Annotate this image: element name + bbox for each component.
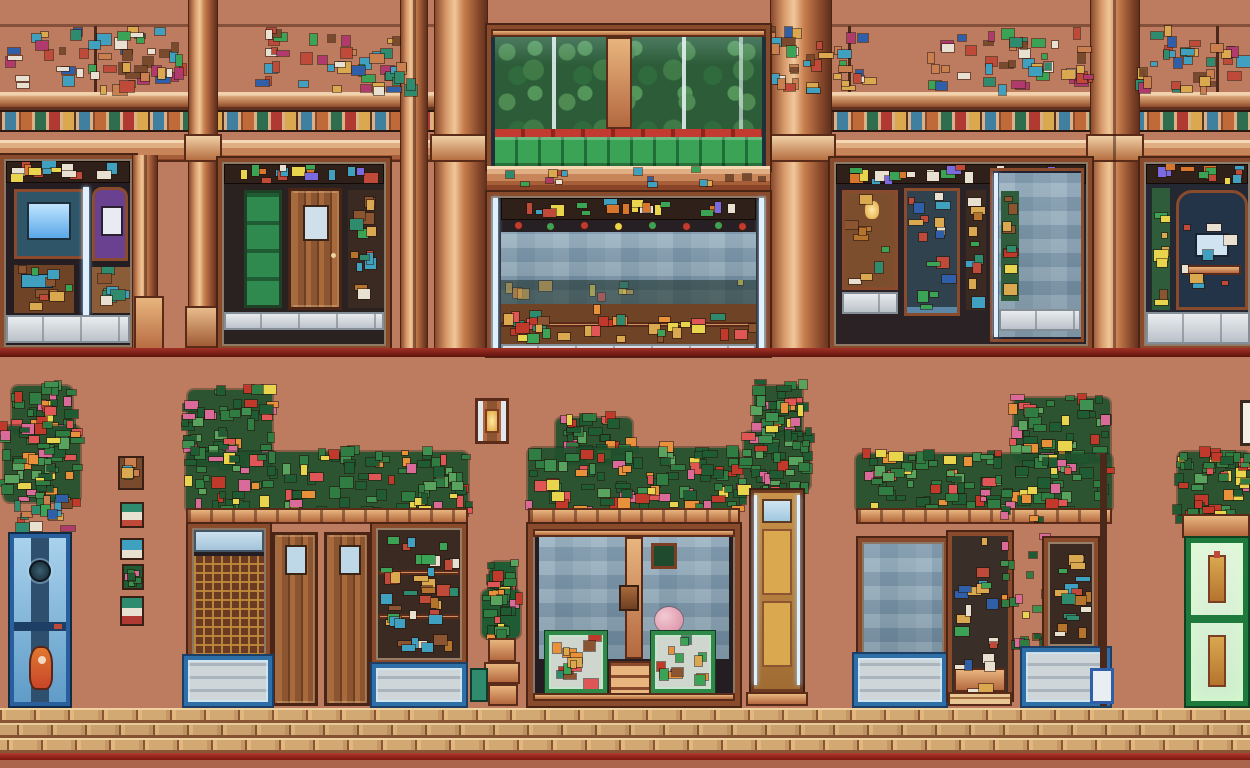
balcony-shelf [487,166,770,192]
vine-cabinet-column[interactable] [744,386,810,706]
pixel-block [715,484,722,490]
pixel-block [66,472,73,479]
pixel-block [692,167,700,172]
pane-mullion [552,37,556,129]
pixel-block [30,303,42,310]
pixel-block [389,476,394,484]
window-glass [864,544,942,656]
pixel-block [1157,259,1167,267]
flower-mass [528,448,740,512]
pixel-block [423,447,432,455]
pixel-block [942,44,954,52]
pixel-block [432,458,440,467]
wall-sign[interactable] [120,502,144,528]
pixel-block [183,414,195,419]
pixel-block [859,228,866,235]
hanging-sign[interactable] [619,585,639,611]
pixel-block [661,458,670,465]
pixel-block [803,441,809,446]
pixel-block [1168,37,1176,47]
lamp-glow [485,409,499,433]
pixel-block [333,86,341,92]
pixel-block [128,574,135,580]
pixel-block [429,615,442,624]
neon-strip [759,198,764,350]
shelf-clutter [1140,30,1250,92]
pixel-block [909,456,915,460]
upper-floor-strip [0,0,1250,356]
pixel-block [16,523,29,533]
pixel-block [727,446,738,457]
pixel-block [504,579,516,586]
case-divider [14,622,66,631]
pixel-block [28,410,33,416]
goods-shelves [1050,544,1092,644]
pixel-block [1244,454,1250,463]
transom-glass [194,530,264,552]
pixel-block [501,608,511,615]
pixel-block [738,485,751,495]
pixel-block [1005,197,1012,201]
pixel-block [1059,569,1067,573]
pixel-block [370,54,384,63]
pixel-block [1166,164,1175,170]
pixel-block [672,668,683,676]
pixel-block [1241,463,1249,467]
pixel-block [931,485,940,493]
pixel-block [1222,50,1231,58]
pixel-block [305,173,318,180]
pixel-block [212,477,225,488]
pixel-block [909,220,923,225]
pixel-block [248,419,254,430]
pixel-block [1091,435,1099,444]
pixel-block [769,481,780,485]
pixel-block [1086,592,1091,602]
pixel-block [141,73,149,81]
pixel-block [598,489,610,497]
pixel-block [224,439,235,444]
pixel-block [688,470,694,479]
pixel-block [927,172,939,181]
amber-cabinet [751,490,803,692]
amber-panel [762,529,792,595]
pixel-block [1001,512,1008,519]
pixel-block [658,330,665,336]
pixel-block [241,170,247,179]
pixel-block [160,50,170,57]
storefront-market [487,192,770,356]
pixel-block [193,418,203,426]
pixel-block [521,182,529,186]
pixel-block [1084,75,1093,79]
pixel-block [863,449,870,458]
storefront-base-panels [1146,312,1250,344]
pixel-block [99,54,111,59]
display-window [858,538,948,662]
pixel-block [1161,216,1170,222]
pixel-block [434,467,444,477]
pixel-block [1022,446,1031,453]
pixel-block [982,538,987,545]
pixel-block [0,422,7,431]
planter-bar [856,508,1112,524]
pixel-block [1047,401,1054,406]
base-plinth [533,693,735,701]
pixel-block [1002,542,1008,550]
pixel-block [959,586,971,592]
door-window [285,545,307,575]
pixel-block [1052,41,1058,48]
counter [224,312,384,330]
pixel-block [889,452,903,461]
pixel-block [1029,552,1037,558]
case-divider [1191,615,1243,623]
pixel-block [1164,50,1169,59]
pixel-block [407,464,416,473]
pixel-block [1009,561,1014,569]
pixel-block [36,41,48,50]
pixel-block [1180,453,1187,460]
pendant-light [615,223,622,230]
pixel-block [441,455,446,465]
pixel-block [692,325,705,333]
pixel-block [65,455,76,460]
pixel-block [778,79,785,89]
pixel-block [791,68,798,73]
pixel-block [356,482,366,489]
pixel-block [1080,468,1093,478]
pixel-block [71,438,84,443]
pixel-block [875,262,883,273]
pixel-block [643,203,650,212]
pixel-block [681,322,690,327]
pendant-light [581,222,588,229]
pixel-block [1045,63,1051,70]
green-cabinet [244,190,282,308]
pixel-block [367,227,376,236]
pixel-block [1228,72,1241,80]
pixel-block [632,207,638,212]
pixel-block [659,447,667,457]
neon-strip [493,198,498,350]
pixel-block [883,473,894,481]
pixel-block [623,204,629,214]
pixel-block [1032,39,1045,47]
pixel-block [277,51,289,56]
pixel-block [1029,67,1042,76]
pixel-block [102,267,114,274]
pixel-block [91,72,99,79]
pixel-block [280,165,286,171]
pixel-block [728,204,735,213]
pixel-block [123,50,132,60]
screen [27,202,71,240]
pixel-block [341,447,354,456]
pixel-block [617,336,625,342]
pixel-block [659,317,670,322]
pixel-block [1020,640,1029,648]
pixel-block [71,30,81,40]
pixel-block [493,571,503,581]
pixel-block [252,385,263,394]
pixel-block [977,568,989,577]
pixel-block [807,88,820,93]
pixel-block [1181,86,1192,92]
pixel-block [582,211,590,215]
pixel-block [947,477,961,481]
pixel-block [1074,28,1080,39]
pixel-block [661,202,670,207]
pixel-block [584,679,598,689]
pixel-block [684,491,696,500]
pixel-block [564,674,576,679]
pixel-block [527,203,532,214]
shop-door-left[interactable] [272,532,318,706]
pixel-block [217,386,225,395]
double-doors[interactable] [272,532,370,706]
pixel-block [947,471,954,476]
pixel-block [1209,175,1216,181]
pixel-block [120,81,134,92]
flower-clock-tower[interactable] [4,386,80,706]
wall-sign[interactable] [118,456,144,490]
window-silhouettes [501,280,756,304]
pixel-block [369,474,381,480]
pixel-block [71,432,80,437]
pixel-block [245,400,257,407]
pixel-block [197,467,206,472]
pixel-block [8,48,20,54]
wall-sign[interactable] [120,596,144,626]
pixel-block [422,494,427,504]
pixel-block [882,247,889,252]
storefront-sign-band [6,161,130,183]
pixel-block [389,606,401,610]
pixel-block [233,499,239,504]
wall-sign[interactable] [120,538,144,560]
pixel-block [966,46,976,55]
pixel-block [1051,468,1057,474]
pixel-block [407,79,415,90]
pixel-block [61,526,75,531]
pixel-block [914,203,924,213]
pixel-block [340,498,349,507]
pixel-block [1241,479,1250,484]
pixel-block [567,415,572,425]
pixel-block [955,627,969,636]
pixel-block [568,435,573,441]
pixel-block [743,174,751,180]
red-latch [54,624,62,629]
green-display-case[interactable] [1186,538,1248,706]
pixel-block [362,75,375,82]
pixel-block [700,180,707,186]
pixel-block [701,474,710,481]
pixel-block [576,470,587,476]
pixel-block [345,463,354,473]
bottle-shelf [966,190,986,310]
pixel-block [879,487,893,495]
pixel-block [1172,82,1180,89]
pixel-block [1078,52,1085,63]
pixel-block [1030,516,1038,521]
pixel-block [491,596,502,605]
pixel-block [73,465,82,470]
pixel-block [377,490,386,500]
pixel-block [987,599,998,609]
pixel-block [1093,447,1107,453]
shelf-alcove [92,267,130,313]
pixel-block [484,610,497,617]
pixel-block [437,585,450,596]
pixel-block [839,66,852,72]
pixel-block [681,638,688,645]
pixel-block [908,481,913,487]
pixel-block [252,483,259,489]
pixel-block [402,645,415,651]
pixel-block [422,588,435,593]
pixel-block [335,62,345,67]
pixel-block [62,171,76,177]
pixel-block [185,460,196,465]
plant-pot [488,684,518,706]
pixel-block [842,86,855,90]
pixel-block [1077,66,1084,73]
pixel-block [328,35,335,42]
shop-door[interactable] [948,532,1012,700]
pixel-block [985,662,995,671]
pixel-block [252,165,259,176]
pixel-block [38,444,49,448]
pixel-block [1207,224,1221,231]
pixel-block [266,30,272,39]
flower-mass [4,426,80,502]
pixel-block [711,314,725,320]
sidewalk-brick-row [0,723,1250,738]
pixel-block [130,33,143,37]
pixel-block [1038,478,1050,488]
topiary-foliage [482,590,520,638]
pixel-block [545,460,556,471]
pixel-block [547,480,559,490]
storefront-base-panels [6,315,130,343]
pixel-block [571,661,576,668]
pixel-block [259,169,266,174]
pixel-block [269,452,275,463]
pixel-block [1174,58,1182,68]
door-handle [331,253,336,258]
pixel-block [530,318,537,324]
pixel-block [5,475,19,483]
pixel-block [134,578,141,583]
produce-shelves [501,304,756,344]
pixel-block [766,413,778,421]
pixel-block [1224,235,1237,245]
pixel-block [233,466,240,471]
pixel-block [607,205,619,213]
storefront-boutique [830,158,1092,350]
pixel-block [1155,300,1168,305]
pixel-block [47,486,53,492]
pixel-block [1023,612,1029,618]
pixel-block [622,490,632,498]
lamp-window [842,190,898,290]
pixel-block [60,48,65,54]
pixel-block [897,496,905,500]
pixel-block [310,473,323,481]
pane-mullion [682,37,686,129]
pixel-block [1002,490,1012,497]
pixel-block [1078,411,1089,418]
pixel-block [29,455,38,464]
pixel-block [669,647,674,654]
pilaster [188,0,218,356]
bottle [1208,635,1226,687]
pixel-block [715,202,721,213]
lintel [533,529,735,537]
shop-door-right[interactable] [324,532,370,706]
pixel-block [134,470,139,476]
pixel-block [592,326,600,336]
white-crate [1090,668,1114,704]
pixel-block [1151,62,1157,66]
shop-door[interactable] [288,188,342,310]
pixel-block [506,171,514,178]
pixel-block [567,428,580,432]
pixel-block [504,314,513,325]
pixel-block [387,87,401,92]
pixel-block [118,32,130,40]
cut-sign[interactable] [1240,400,1250,446]
sidewalk-brick-row [0,708,1250,723]
pixel-block [450,494,457,498]
pixel-block [381,594,392,604]
pixel-block [126,73,140,78]
pixel-block [340,477,353,488]
pixel-block [932,65,939,73]
pixel-block [958,35,966,41]
flower-mass [744,432,810,490]
pixel-block [798,405,803,416]
pixel-block [328,65,334,71]
pixel-block [777,386,791,391]
pixel-block [67,390,76,395]
base-plinth [746,692,808,706]
pixel-block [817,42,822,49]
pixel-block [735,330,747,339]
pixel-block [1022,495,1031,503]
pixel-block [268,433,274,442]
pixel-block [702,465,713,475]
pixel-block [703,451,717,457]
pixel-block [973,453,981,461]
pixel-block [543,329,550,338]
pixel-block [449,473,456,482]
pixel-block [539,281,552,291]
pixel-block [1001,561,1009,566]
pixel-block [367,200,374,210]
produce-planter [651,631,715,693]
pixel-block [512,312,519,322]
pixel-block [518,335,527,341]
shop-door[interactable] [904,188,960,316]
door-window [303,205,329,241]
pixel-block [581,450,593,459]
pixel-block [301,465,307,475]
wall-picture [651,543,677,569]
pixel-block [388,537,399,544]
